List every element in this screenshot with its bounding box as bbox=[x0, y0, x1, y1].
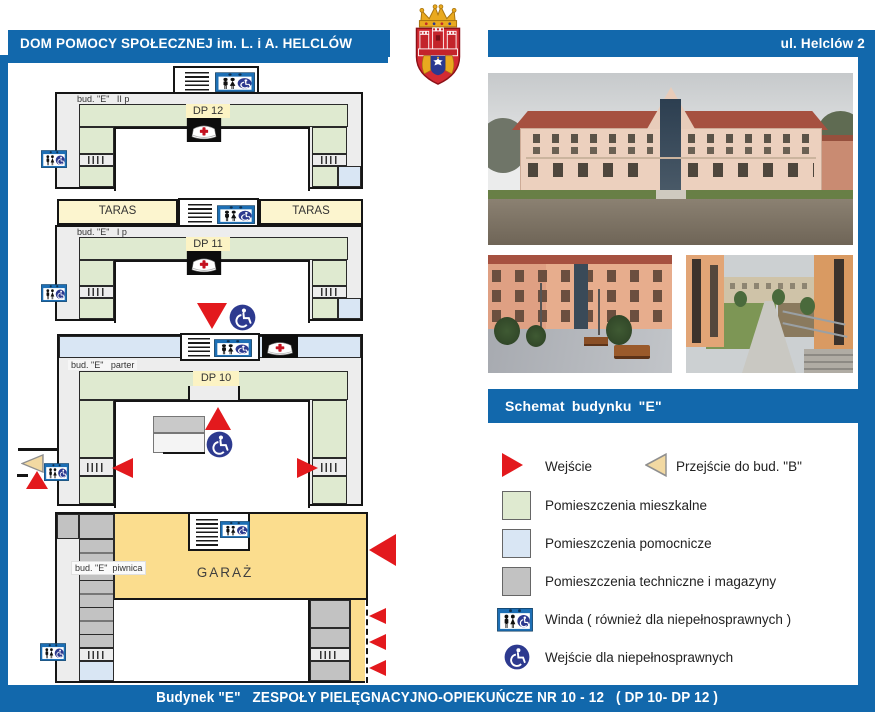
ramp-edge-line bbox=[163, 452, 205, 454]
floor1-terrace-left: TARAS bbox=[57, 199, 178, 225]
wheelchair-icon bbox=[229, 304, 256, 331]
floor1-right-wing-upper bbox=[312, 260, 347, 286]
stairs-icon bbox=[188, 338, 210, 357]
frame-left-stripe bbox=[0, 55, 8, 712]
stairs-mark bbox=[320, 651, 336, 659]
legend-passage-arrow-icon bbox=[645, 453, 667, 477]
garage-label: GARAŻ bbox=[165, 565, 285, 580]
floor1-left-wing-lower bbox=[79, 298, 114, 319]
elevator-icon bbox=[217, 204, 255, 224]
information-board: DOM POMOCY SPOŁECZNEJ im. L. i A. HELCLÓ… bbox=[0, 0, 875, 718]
photo-layer-windows-mid-left bbox=[533, 147, 653, 154]
photo-layer-bush bbox=[606, 315, 632, 345]
ground-right-wing-upper bbox=[312, 400, 347, 458]
photo-layer-cornice bbox=[526, 157, 816, 159]
photo-layer-windows-mid-right bbox=[688, 147, 813, 154]
legend-accessible-label: Wejście dla niepełnosprawnych bbox=[545, 648, 733, 668]
ground-label: bud. "E" parter bbox=[68, 360, 137, 370]
floor2-right-wing-upper bbox=[312, 127, 347, 154]
photo-layer-lamp bbox=[598, 289, 600, 335]
basement-technical-room bbox=[310, 661, 350, 681]
entrance-arrow-up-small bbox=[26, 471, 48, 489]
entrance-arrow-up bbox=[205, 407, 231, 430]
header-right-bar: ul. Helclów 2 bbox=[488, 30, 875, 57]
basement-technical-room bbox=[79, 514, 114, 539]
photo-walkway bbox=[686, 255, 853, 373]
photo-layer-side-building bbox=[820, 135, 853, 196]
section-bar: Schemat budynku "E" bbox=[488, 389, 875, 423]
floor1-auxiliary-room bbox=[338, 298, 361, 319]
photo-layer-windows-upper-right bbox=[688, 134, 813, 143]
floor2-stairwell bbox=[173, 66, 259, 95]
nurse-cap-icon bbox=[186, 251, 222, 275]
floor1-terrace-right: TARAS bbox=[259, 199, 363, 225]
photo-layer-tree bbox=[772, 289, 785, 305]
photo-layer-windows-lower-left bbox=[528, 163, 653, 177]
entrance-arrow-left-small bbox=[369, 608, 386, 624]
photo-layer-steps bbox=[804, 349, 853, 373]
section-title: Schemat budynku "E" bbox=[488, 389, 875, 423]
elevator-icon bbox=[497, 606, 533, 632]
facility-title: DOM POMOCY SPOŁECZNEJ im. L. i A. HELCLÓ… bbox=[8, 30, 390, 57]
stairs-mark bbox=[87, 463, 105, 472]
krakow-coat-of-arms-icon bbox=[406, 2, 470, 88]
photo-layer-bench bbox=[584, 337, 608, 346]
entrance-arrow-left-small bbox=[369, 660, 386, 676]
legend-auxiliary-swatch bbox=[502, 529, 531, 558]
entrance-arrow-down bbox=[197, 303, 227, 329]
terrace-label: TARAS bbox=[59, 205, 176, 217]
elevator-icon bbox=[40, 642, 66, 661]
elevator-icon bbox=[41, 149, 67, 168]
photo-building-front bbox=[488, 73, 853, 245]
photo-layer-bench bbox=[614, 345, 650, 359]
photo-layer-tree bbox=[800, 297, 815, 315]
basement-technical-room bbox=[310, 628, 350, 648]
floor2-right-wing-lower bbox=[312, 166, 338, 187]
legend-entrance-label: Wejście bbox=[545, 457, 592, 477]
photo-layer-distant-windows bbox=[718, 283, 822, 289]
photo-layer-tree bbox=[734, 291, 747, 307]
frame-top-strip bbox=[0, 55, 388, 63]
basement-technical-room bbox=[310, 600, 350, 628]
floor2-left-wing-upper bbox=[79, 127, 114, 154]
legend-technical-swatch bbox=[502, 567, 531, 596]
elevator-icon bbox=[214, 338, 252, 357]
floor2-unit-label: DP 12 bbox=[186, 104, 230, 118]
wheelchair-icon bbox=[504, 644, 530, 670]
ground-left-wing-lower bbox=[79, 476, 114, 504]
basement-auxiliary-room bbox=[79, 661, 114, 681]
stairs-icon bbox=[196, 519, 218, 547]
photo-layer-ground bbox=[488, 199, 853, 245]
floor1-unit-label: DP 11 bbox=[186, 237, 230, 251]
photo-layer-windows-upper-left bbox=[533, 134, 653, 143]
stairs-mark bbox=[321, 156, 337, 164]
footer-title: Budynek "E" ZESPOŁY PIELĘGNACYJNO-OPIEKU… bbox=[157, 685, 719, 712]
ground-right-wing-lower bbox=[312, 476, 347, 504]
ground-unit-label: DP 10 bbox=[193, 371, 239, 386]
legend-residential-label: Pomieszczenia mieszkalne bbox=[545, 496, 707, 516]
stairs-mark bbox=[88, 651, 104, 659]
photo-layer-glass-column bbox=[574, 264, 588, 329]
passage-corridor-line bbox=[17, 474, 28, 477]
stairs-icon bbox=[185, 72, 209, 91]
elevator-icon bbox=[41, 283, 67, 302]
terrace-label: TARAS bbox=[261, 205, 361, 217]
photo-courtyard bbox=[488, 255, 672, 373]
floor2-auxiliary-room bbox=[338, 166, 361, 187]
stairs-mark bbox=[88, 288, 104, 296]
photo-layer-left-glass bbox=[710, 265, 718, 337]
legend-residential-swatch bbox=[502, 491, 531, 520]
photo-layer-right-glass bbox=[834, 259, 844, 345]
street-address: ul. Helclów 2 bbox=[488, 30, 875, 57]
floor1-label: bud. "E" I p bbox=[77, 227, 127, 237]
entrance-arrow-left-small bbox=[369, 634, 386, 650]
stairs-mark bbox=[321, 463, 339, 472]
elevator-icon bbox=[220, 520, 250, 538]
footer-bar: Budynek "E" ZESPOŁY PIELĘGNACYJNO-OPIEKU… bbox=[0, 685, 875, 712]
basement-label: bud. "E" piwnica bbox=[71, 561, 146, 575]
legend-technical-label: Pomieszczenia techniczne i magazyny bbox=[545, 572, 776, 592]
frame-right-stripe bbox=[858, 57, 875, 712]
stairs-mark bbox=[321, 288, 337, 296]
passage-corridor-line bbox=[18, 448, 57, 451]
basement-stairwell bbox=[188, 512, 250, 551]
legend-auxiliary-label: Pomieszczenia pomocnicze bbox=[545, 534, 712, 554]
legend-elevator-label: Winda ( również dla niepełnosprawnych ) bbox=[545, 610, 791, 630]
ground-stairwell bbox=[180, 333, 260, 361]
wheelchair-icon bbox=[206, 431, 233, 458]
elevator-icon bbox=[215, 71, 255, 92]
basement-garage-corridor bbox=[350, 600, 366, 681]
floor2-left-wing-lower bbox=[79, 166, 114, 187]
photo-layer-bush bbox=[494, 317, 520, 345]
legend-passage-label: Przejście do bud. "B" bbox=[676, 457, 802, 477]
floor1-stairwell bbox=[178, 198, 259, 228]
basement-technical-stack bbox=[79, 539, 114, 648]
entrance-arrow-right bbox=[297, 458, 318, 478]
floor2-label: bud. "E" II p bbox=[77, 94, 129, 104]
floor1-left-wing-upper bbox=[79, 260, 114, 286]
ramp-upper bbox=[153, 416, 205, 433]
photo-layer-roof bbox=[488, 255, 672, 264]
basement-technical-room bbox=[57, 514, 79, 539]
photo-layer-windows-lower-right bbox=[688, 163, 814, 177]
legend-entrance-arrow bbox=[502, 453, 523, 477]
stairs-icon bbox=[188, 204, 212, 224]
header-left-bar: DOM POMOCY SPOŁECZNEJ im. L. i A. HELCLÓ… bbox=[8, 30, 390, 57]
ramp-lower bbox=[153, 433, 205, 453]
photo-layer-left-glass bbox=[692, 259, 701, 343]
stairs-mark bbox=[88, 156, 104, 164]
dashed-wall bbox=[366, 600, 368, 683]
entrance-arrow-left-large bbox=[369, 534, 396, 566]
ground-left-wing-upper bbox=[79, 400, 114, 458]
nurse-cap-icon bbox=[186, 118, 222, 142]
nurse-cap-icon bbox=[262, 335, 298, 358]
entrance-arrow-left bbox=[112, 458, 133, 478]
floor1-right-wing-lower bbox=[312, 298, 338, 319]
photo-layer-glass-tower bbox=[660, 99, 681, 193]
photo-layer-bush bbox=[526, 325, 546, 347]
